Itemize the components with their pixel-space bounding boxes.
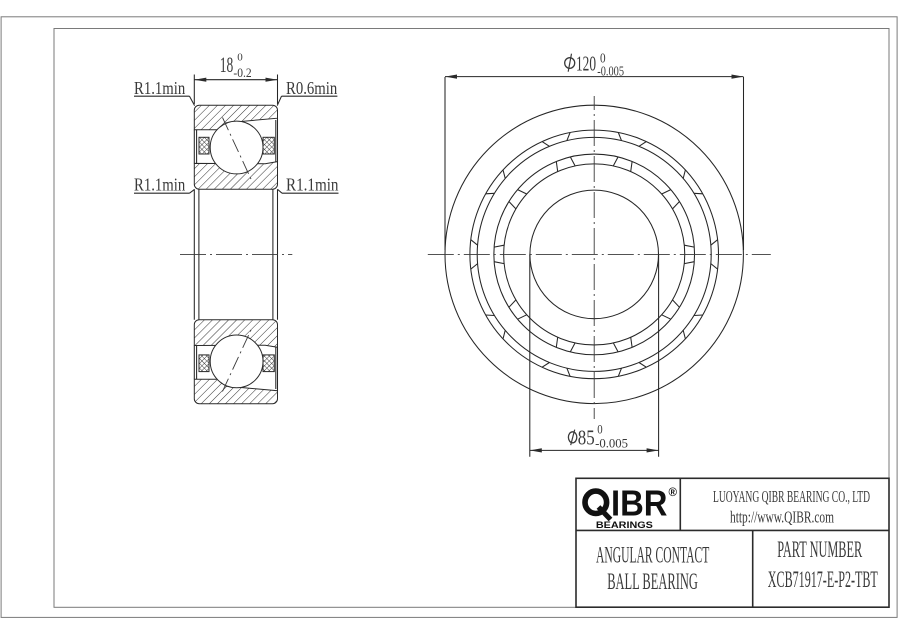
- svg-text:-0.2: -0.2: [233, 65, 251, 80]
- svg-text:http://www.QIBR.com: http://www.QIBR.com: [730, 508, 834, 527]
- svg-text:85: 85: [578, 426, 595, 450]
- svg-text:R1.1min: R1.1min: [286, 175, 339, 195]
- svg-text:120: 120: [576, 51, 596, 75]
- svg-text:®: ®: [669, 487, 678, 499]
- svg-text:BALL BEARING: BALL BEARING: [607, 569, 698, 594]
- svg-text:XCB71917-E-P2-TBT: XCB71917-E-P2-TBT: [768, 567, 878, 592]
- svg-text:ANGULAR CONTACT: ANGULAR CONTACT: [596, 543, 709, 568]
- svg-text:PART NUMBER: PART NUMBER: [777, 537, 862, 562]
- svg-text:LUOYANG QIBR BEARING CO., LTD: LUOYANG QIBR BEARING CO., LTD: [713, 487, 870, 506]
- svg-text:R1.1min: R1.1min: [134, 78, 185, 98]
- svg-text:IBR: IBR: [611, 483, 668, 524]
- svg-text:R1.1min: R1.1min: [134, 175, 185, 195]
- svg-text:18: 18: [220, 52, 234, 77]
- svg-text:BEARINGS: BEARINGS: [596, 520, 653, 530]
- svg-text:0: 0: [237, 51, 243, 63]
- svg-text:R0.6min: R0.6min: [286, 78, 337, 98]
- svg-text:-0.005: -0.005: [597, 64, 624, 79]
- svg-text:-0.005: -0.005: [595, 435, 628, 450]
